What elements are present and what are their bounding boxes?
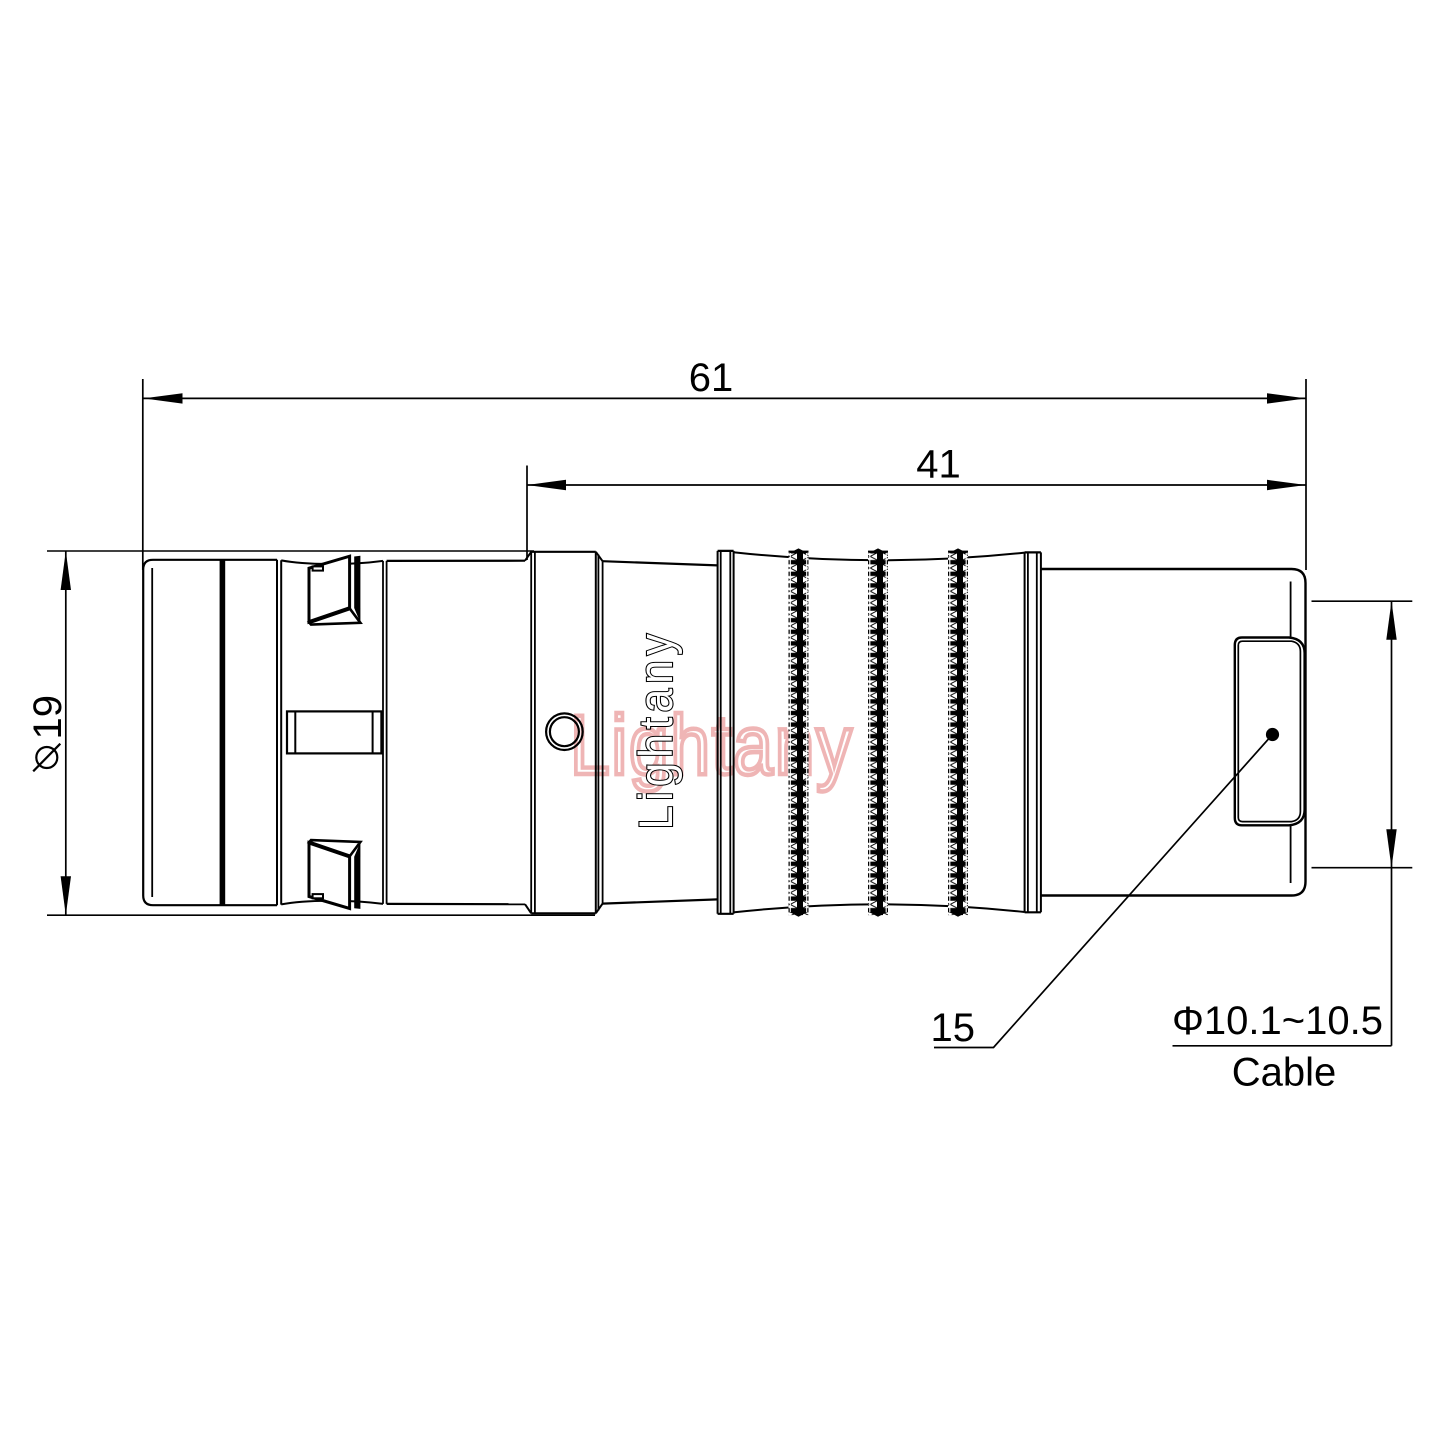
svg-text:Cable: Cable [1232,1051,1337,1095]
svg-text:41: 41 [916,443,961,487]
svg-text:19: 19 [26,695,70,740]
svg-text:Φ10.1~10.5: Φ10.1~10.5 [1172,999,1383,1043]
svg-text:Lightany: Lightany [629,629,683,829]
svg-text:61: 61 [689,356,734,400]
svg-text:Lightany: Lightany [570,697,853,792]
svg-text:15: 15 [931,1006,976,1050]
